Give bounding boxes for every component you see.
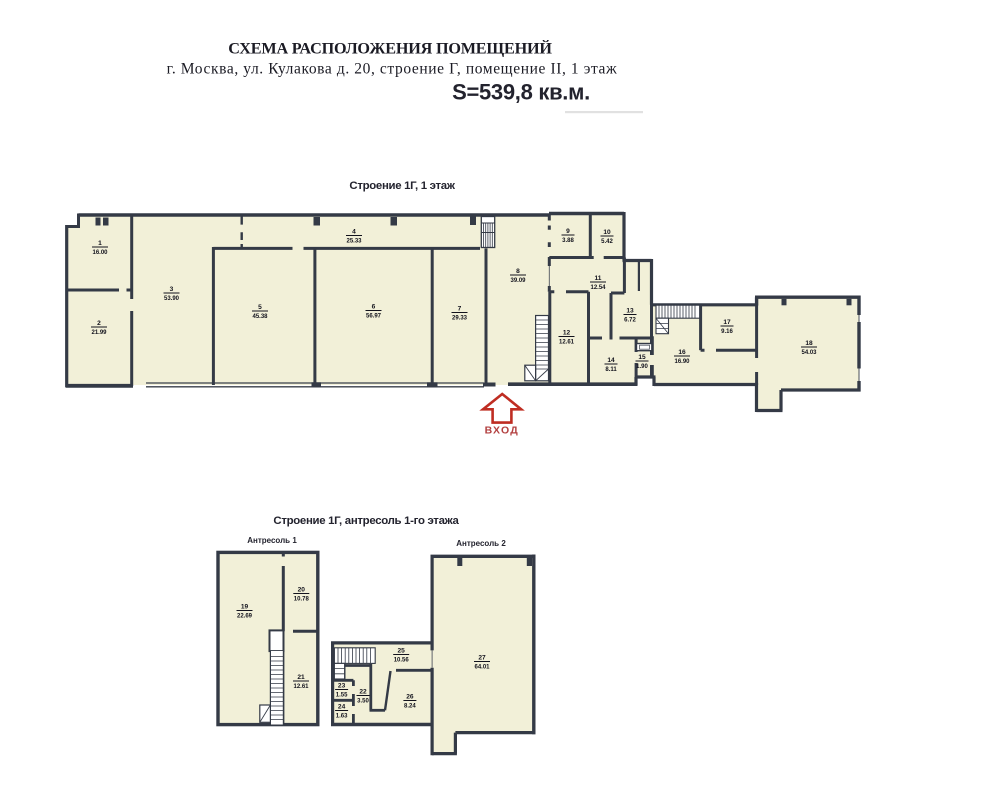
svg-text:12.61: 12.61	[293, 684, 309, 690]
svg-text:18: 18	[805, 340, 813, 347]
svg-text:14: 14	[607, 357, 615, 364]
svg-text:5: 5	[258, 304, 262, 311]
svg-text:54.03: 54.03	[801, 350, 817, 356]
svg-text:3.88: 3.88	[562, 238, 574, 244]
svg-text:3.50: 3.50	[357, 699, 369, 705]
svg-text:2: 2	[97, 320, 101, 327]
svg-text:12.61: 12.61	[559, 340, 575, 346]
svg-text:8: 8	[516, 268, 520, 275]
svg-text:21: 21	[297, 674, 305, 681]
svg-text:S=539,8 кв.м.: S=539,8 кв.м.	[452, 80, 590, 105]
svg-text:16.00: 16.00	[92, 250, 108, 256]
svg-text:64.01: 64.01	[474, 665, 490, 671]
svg-text:4: 4	[352, 229, 356, 236]
svg-text:26: 26	[406, 694, 414, 701]
svg-text:ВХОД: ВХОД	[485, 425, 519, 437]
svg-text:Строение 1Г, антресоль 1-го эт: Строение 1Г, антресоль 1-го этажа	[273, 515, 459, 527]
svg-text:56.97: 56.97	[366, 314, 382, 320]
svg-text:г. Москва, ул. Кулакова д. 20,: г. Москва, ул. Кулакова д. 20, строение …	[167, 61, 618, 78]
svg-text:7: 7	[458, 306, 462, 313]
svg-text:10.56: 10.56	[394, 658, 410, 664]
svg-text:25.33: 25.33	[346, 239, 362, 245]
svg-text:10: 10	[603, 229, 611, 236]
svg-text:1.90: 1.90	[636, 364, 648, 370]
svg-text:3: 3	[170, 286, 174, 293]
svg-text:24: 24	[338, 704, 346, 711]
svg-text:19: 19	[241, 604, 249, 611]
svg-text:1.55: 1.55	[336, 693, 348, 699]
svg-text:20: 20	[298, 587, 306, 594]
svg-text:Антресоль 1: Антресоль 1	[247, 536, 297, 545]
svg-text:6.72: 6.72	[624, 318, 636, 324]
svg-text:12: 12	[563, 330, 571, 337]
svg-text:6: 6	[372, 304, 376, 311]
svg-text:8.24: 8.24	[404, 704, 416, 710]
svg-text:25: 25	[398, 648, 406, 655]
svg-text:11: 11	[595, 275, 602, 282]
svg-text:9: 9	[566, 228, 570, 235]
svg-text:53.90: 53.90	[164, 296, 180, 302]
svg-text:Строение 1Г, 1 этаж: Строение 1Г, 1 этаж	[349, 180, 455, 192]
svg-text:15: 15	[638, 354, 646, 361]
svg-text:17: 17	[723, 319, 731, 326]
svg-text:16: 16	[678, 349, 686, 356]
svg-text:39.09: 39.09	[510, 278, 526, 284]
svg-text:45.38: 45.38	[252, 314, 268, 320]
svg-text:8.11: 8.11	[605, 367, 617, 373]
svg-text:13: 13	[626, 308, 634, 315]
svg-text:27: 27	[478, 655, 486, 662]
svg-text:1.63: 1.63	[336, 714, 348, 720]
svg-text:Антресоль 2: Антресоль 2	[456, 539, 506, 548]
svg-text:23: 23	[338, 683, 346, 690]
svg-text:5.42: 5.42	[601, 239, 613, 245]
svg-text:СХЕМА РАСПОЛОЖЕНИЯ ПОМЕЩЕНИЙ: СХЕМА РАСПОЛОЖЕНИЯ ПОМЕЩЕНИЙ	[228, 39, 552, 58]
svg-text:22: 22	[359, 689, 367, 696]
svg-text:22.69: 22.69	[237, 614, 253, 620]
svg-text:1: 1	[98, 240, 102, 247]
svg-text:9.16: 9.16	[721, 329, 733, 335]
svg-text:10.78: 10.78	[294, 597, 310, 603]
svg-text:29.33: 29.33	[452, 316, 468, 322]
svg-text:12.54: 12.54	[590, 285, 606, 291]
svg-text:16.90: 16.90	[674, 359, 690, 365]
svg-text:21.99: 21.99	[91, 330, 107, 336]
